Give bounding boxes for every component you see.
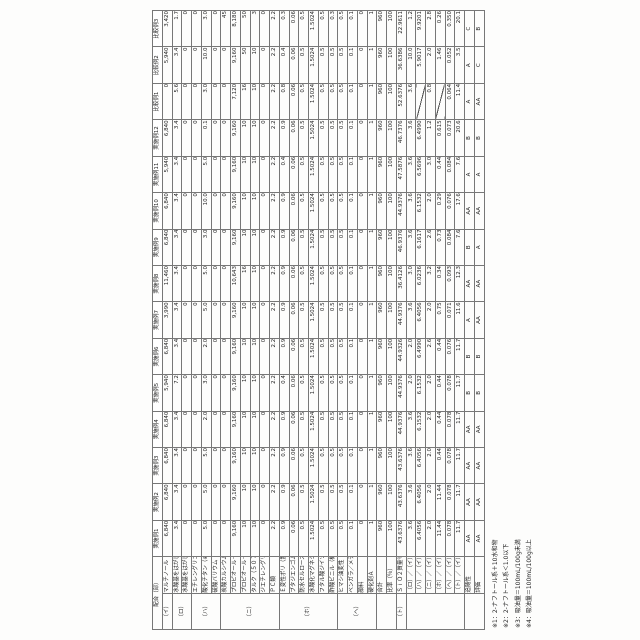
value-cell: 0.1 [201,120,211,156]
value-cell: 2.6 [426,229,436,265]
value-cell: 11.44 [435,520,445,556]
value-cell: 1.5024 [309,302,319,338]
value-cell: 0 [357,484,367,520]
value-cell: 0.73 [435,229,445,265]
value-cell: 6.4056 [416,302,426,338]
value-cell: 44.9376 [396,411,406,447]
table-body: （イ）マルチノール6,8406,8406,8406,8405,9406,8403… [162,11,484,630]
evaluation-cell: B [465,338,475,374]
value-cell: 10 [240,229,250,265]
value-cell: 0.5 [338,447,348,483]
evaluation-cell: AA [465,193,475,229]
table-row: 酢酸ビニル（機能性モノマー）系0.50.50.50.50.50.50.50.50… [328,11,338,630]
table-row: 硫酸バリウム（※4）000000000000000 [211,11,221,630]
value-cell: 0.5 [299,484,309,520]
value-cell: 10 [240,193,250,229]
row-label-cell: Ｅ変性ポリ（置換ナイロン）ゴム [279,557,289,593]
value-cell: 0.078 [445,375,455,411]
value-cell: 10.0 [201,193,211,229]
value-cell: 3.6 [406,83,416,119]
value-cell: 10 [240,156,250,192]
value-cell: 5.0 [201,156,211,192]
value-cell: 0.9 [279,265,289,301]
table-row: 防水セルロース0.50.50.50.50.50.50.50.50.50.50.5… [299,11,309,630]
value-cell: 12.3 [455,265,465,301]
value-cell: 2.2 [270,302,280,338]
value-cell: 43.6376 [396,520,406,556]
value-cell: 3.4 [172,302,182,338]
group-cell: （ニ） [221,593,280,629]
value-cell: 9,160 [231,520,241,556]
value-cell: 0 [221,338,231,374]
value-cell: 0.5 [299,11,309,48]
value-cell: 0.06 [289,265,299,301]
value-cell: 1.5024 [309,484,319,520]
value-cell: 9,160 [231,120,241,156]
value-cell: 10 [250,447,260,483]
value-cell: 2.0 [426,375,436,411]
value-cell: 0.1 [348,338,358,374]
table-row: ブタジエンゴム0.060.060.060.060.060.060.060.060… [289,11,299,630]
value-cell: 6.5696 [416,156,426,192]
value-cell: 0 [357,156,367,192]
table-header: 配合（部） 実施例1実施例2実施例3実施例4実施例5実施例6実施例7実施例8実施… [153,11,163,630]
value-cell: 0.5 [299,83,309,119]
table-row: （ホ）Ｅ変性ポリ（置換ナイロン）ゴム0.90.90.90.90.40.90.90… [279,11,289,630]
value-cell: 0.06 [289,302,299,338]
table-row: （ヘ）ヒマシ油変性（硬化ジエステル・テルペン系ゴム）0.50.50.50.50.… [338,11,348,630]
value-cell: 0.078 [445,411,455,447]
value-cell: 0.5 [328,156,338,192]
value-cell: 0 [357,338,367,374]
value-cell: 0 [192,338,202,374]
evaluation-cell: AA [474,265,484,301]
evaluation-cell: AA [474,484,484,520]
value-cell: 2.6 [426,338,436,374]
group-cell: （イ） [162,593,172,629]
value-cell: 3.4 [172,47,182,83]
value-cell: 3,990 [162,302,172,338]
value-cell: 0 [260,447,270,483]
row-label-cell: （ニ）／（イ） [426,557,436,593]
value-cell: 100 [387,411,397,447]
value-cell: 0.5 [318,83,328,119]
value-cell: 0 [211,411,221,447]
value-cell: 0.06 [289,229,299,265]
value-cell: 0.1 [348,411,358,447]
table-row: 追随性AAAAAAAABBAAABAAABAAC [465,11,475,630]
value-cell: 100 [387,156,397,192]
table-row: （イ）マルチノール6,8406,8406,8406,8405,9406,8403… [162,11,172,630]
value-cell: 0.44 [435,411,445,447]
row-label-cell: 評価 [474,557,484,593]
footnote-line: ※2：2-ナフトール系＜1.0以下 [501,10,513,628]
value-cell: 0.75 [435,302,445,338]
value-cell: 2.2 [270,83,280,119]
value-cell: 0.1 [348,156,358,192]
column-header: 実施例1 [153,520,163,556]
value-cell: 1 [367,265,377,301]
value-cell: 0.1 [348,11,358,48]
value-cell: 0 [357,120,367,156]
value-cell: 1.2 [426,120,436,156]
value-cell: 3.4 [172,411,182,447]
value-cell: 2.2 [270,11,280,48]
value-cell: 3.4 [172,520,182,556]
footnote-line: ※3：吸油量＝100mL/100g未満 [513,10,525,628]
value-cell: 2.2 [270,411,280,447]
value-cell: 10 [240,302,250,338]
value-cell: 0 [260,47,270,83]
value-cell: 0 [192,265,202,301]
row-label-cell: エチレングリコール [192,557,202,593]
value-cell: 0.5 [328,411,338,447]
value-cell: 0.4 [279,375,289,411]
value-cell: 0 [221,156,231,192]
value-cell: 1.46 [435,47,445,83]
evaluation-cell: AA [474,193,484,229]
value-cell: 0.9 [279,411,289,447]
value-cell: 2.0 [406,338,416,374]
value-cell: 0.5 [338,120,348,156]
value-cell: 960 [377,11,387,48]
value-cell: 0.44 [435,447,445,483]
value-cell: 0.5 [318,520,328,556]
evaluation-cell: A [465,83,475,119]
value-cell: 0 [211,520,221,556]
value-cell: 0 [182,302,192,338]
value-cell: 0.5 [338,484,348,520]
value-cell: 0.1 [348,302,358,338]
value-cell: 3.6 [406,229,416,265]
value-cell: 2.0 [201,338,211,374]
value-cell: 0.1 [348,229,358,265]
value-cell: 1 [367,411,377,447]
value-cell: 960 [377,338,387,374]
row-label-cell: （ホ）／（イ） [435,557,445,593]
value-cell: 0 [260,375,270,411]
value-cell: 11.7 [455,520,465,556]
value-cell: 3.0 [426,156,436,192]
group-cell [406,593,465,629]
value-cell: 0.9 [279,193,289,229]
value-cell: 2.0 [426,302,436,338]
row-label-cell: 炭酸カルシウム（うち－重質／軽質配合） [221,557,231,593]
value-cell: 16 [240,265,250,301]
value-cell: 9,160 [231,375,241,411]
value-cell: 0.5 [318,265,328,301]
value-cell: 8,180 [231,11,241,48]
value-cell: 0 [260,411,270,447]
value-cell: 0 [192,229,202,265]
value-cell: 0.084 [445,156,455,192]
value-cell: 0 [260,520,270,556]
table-row: プロピオール－Ｂ（５４５）101010101010101610101010165… [240,11,250,630]
column-header: 実施例10 [153,193,163,229]
value-cell: 0.9 [279,120,289,156]
value-cell: 0.06 [289,520,299,556]
value-cell: 100 [387,229,397,265]
value-cell: 0.9 [279,447,289,483]
value-cell: 10 [240,375,250,411]
value-cell: 960 [377,120,387,156]
value-cell: 2.2 [270,193,280,229]
value-cell: 0 [221,120,231,156]
value-cell: 6.4056 [416,484,426,520]
value-cell: 960 [377,375,387,411]
evaluation-cell: AA [474,447,484,483]
value-cell: 5.6 [172,83,182,119]
value-cell: 0 [357,193,367,229]
value-cell: 3.4 [172,447,182,483]
value-cell: 0.5 [338,47,348,83]
value-cell: 2.0 [426,193,436,229]
value-cell: 2.2 [270,229,280,265]
value-cell: 0 [221,193,231,229]
value-cell: 0 [182,120,192,156]
value-cell: 0.1 [348,520,358,556]
value-cell: 960 [377,193,387,229]
value-cell: 44.9376 [396,193,406,229]
value-cell: 960 [377,83,387,119]
value-cell: 960 [377,520,387,556]
value-cell: 0.34 [435,265,445,301]
value-cell: 3.6 [406,302,416,338]
value-cell: 0.5 [318,338,328,374]
value-cell: 0 [192,447,202,483]
table-row: （ヘ）／（イ）0.0780.0780.0780.0780.0780.0760.0… [445,11,455,630]
value-cell: 0.5 [299,193,309,229]
value-cell: 960 [377,484,387,520]
value-cell: 6.1617 [416,229,426,265]
value-cell: 6,840 [162,411,172,447]
value-cell: 0 [192,47,202,83]
value-cell: 0 [211,338,221,374]
value-cell: 100 [387,265,397,301]
value-cell: 0.1 [348,193,358,229]
value-cell: 0 [192,411,202,447]
row-label-cell: 硫酸バリウム（※4） [211,557,221,593]
value-cell: 0.29 [435,193,445,229]
value-cell: 9,160 [231,484,241,520]
value-cell: 0 [221,520,231,556]
value-cell: 0.5 [318,447,328,483]
group-cell [377,593,397,629]
value-cell: 0 [357,520,367,556]
table-row: 水酸基をはがしたもの（Ｑ－３７タノール）（※2）000000000000000 [182,11,192,630]
table-row: 評価AAAAAAAABBAAAAAAAABAACB [474,11,484,630]
value-cell: 0 [221,302,231,338]
value-cell: 6.1532 [416,375,426,411]
value-cell: 6.4990 [416,338,426,374]
value-cell: 1.5024 [309,47,319,83]
value-cell: 1.5024 [309,229,319,265]
value-cell: 0 [211,265,221,301]
value-cell: 0 [221,265,231,301]
value-cell: 100 [387,447,397,483]
value-cell: 0.1 [348,120,358,156]
value-cell: 5.0 [201,265,211,301]
value-cell: 50 [240,11,250,48]
value-cell: 2.2 [270,156,280,192]
value-cell: 3,420 [162,11,172,48]
value-cell: 0.5 [318,11,328,48]
value-cell: 6.1532 [416,411,426,447]
value-cell: 0 [211,375,221,411]
column-header: 実施例8 [153,265,163,301]
value-cell: 0 [221,375,231,411]
row-label-cell: （ト）／（イ） [455,557,465,593]
value-cell: 100 [387,11,397,48]
value-cell: 1.5024 [309,447,319,483]
value-cell: 5.9017 [416,47,426,83]
value-cell: 0 [357,83,367,119]
evaluation-cell: A [474,156,484,192]
value-cell: 52.6376 [396,83,406,119]
value-cell: 1 [367,193,377,229]
value-cell: 3.5 [455,47,465,83]
value-cell: 3.4 [172,229,182,265]
column-header: 実施例4 [153,411,163,447]
value-cell: 0.5 [328,447,338,483]
value-cell: 6,840 [162,338,172,374]
value-cell: 0.5 [299,265,309,301]
evaluation-cell: AA [474,411,484,447]
value-cell: 100 [387,338,397,374]
value-cell: 1.5024 [309,520,319,556]
table-row: 硬化剤Ａ111111111111111 [367,11,377,630]
value-cell: 10 [250,193,260,229]
value-cell: 0.5 [328,83,338,119]
value-cell: 0 [221,229,231,265]
value-cell: 0 [211,302,221,338]
value-cell: 0 [182,47,192,83]
group-cell: （ハ） [192,593,221,629]
value-cell: 1.7 [172,11,182,48]
evaluation-cell: A [474,229,484,265]
value-cell: 0 [260,193,270,229]
value-cell: 2.2 [270,375,280,411]
value-cell: 2.2 [270,120,280,156]
value-cell: 0.5 [299,411,309,447]
value-cell: 0 [182,484,192,520]
value-cell: 50 [240,47,250,83]
value-cell: 3.6 [406,447,416,483]
value-cell: 0.5 [328,265,338,301]
value-cell: 0.5 [338,11,348,48]
value-cell: 0.3 [279,11,289,48]
value-cell: 0.06 [289,375,299,411]
value-cell: 22.9611 [396,11,406,48]
value-cell: 45 [221,11,231,48]
value-cell: 0.9 [279,484,289,520]
value-cell: 5.0 [201,447,211,483]
value-cell: 0 [182,338,192,374]
value-cell: 0 [260,11,270,48]
value-cell: 0.076 [445,193,455,229]
row-label-cell: プロピオール－Ｂ（５４５） [240,557,250,593]
value-cell: 0.5 [338,338,348,374]
value-cell: 0.06 [289,338,299,374]
rotated-table-block: 配合（部） 実施例1実施例2実施例3実施例4実施例5実施例6実施例7実施例8実施… [152,10,512,630]
value-cell: 11.7 [455,411,465,447]
table-row: ＰＣ類2.22.22.22.22.22.22.22.22.22.22.22.22… [270,11,280,630]
evaluation-cell: AA [474,83,484,119]
value-cell: 11.7 [455,338,465,374]
value-cell: 0.44 [435,375,445,411]
value-cell: 44.9326 [396,338,406,374]
column-header: 実施例6 [153,338,163,374]
value-cell: 0.5 [338,229,348,265]
table-row: （ニ）／（イ）2.02.02.02.02.02.62.03.22.62.03.0… [426,11,436,630]
value-cell: 1 [367,338,377,374]
evaluation-cell: B [465,120,475,156]
value-cell: 0 [260,83,270,119]
value-cell: 2.0 [201,411,211,447]
value-cell: 0.076 [445,338,455,374]
value-cell: 10 [240,520,250,556]
value-cell: 0 [221,411,231,447]
value-cell: 0.5 [338,193,348,229]
column-header: 実施例9 [153,229,163,265]
row-label-cell: 酸化チタン（※3） [201,557,211,593]
value-cell: 0.06 [289,11,299,48]
value-cell: 1 [367,375,377,411]
value-cell: 0 [182,229,192,265]
column-header: 実施例2 [153,484,163,520]
value-cell: 6.0236 [416,265,426,301]
value-cell: 3.4 [172,338,182,374]
value-cell: 6,840 [162,229,172,265]
value-cell: 11.7 [455,447,465,483]
value-cell: 0 [211,156,221,192]
value-cell: 0.5 [318,375,328,411]
value-cell: 3.6 [406,156,416,192]
row-label-cell: （ヘ）／（イ） [445,557,455,593]
evaluation-cell: AA [465,447,475,483]
value-cell: 960 [377,265,387,301]
value-cell: 9,160 [231,411,241,447]
value-cell: 0 [192,484,202,520]
value-cell: 1.2 [406,11,416,48]
value-cell: 0.615 [435,120,445,156]
value-cell: 11,460 [162,265,172,301]
value-cell: 0.5 [299,520,309,556]
value-cell: 44.9376 [396,302,406,338]
table-row: （ニ）炭酸カルシウム（うち－重質／軽質配合）0000000000000045 [221,11,231,630]
value-cell: 100 [387,520,397,556]
evaluation-cell: AA [465,484,475,520]
value-cell: 3.0 [406,265,416,301]
value-cell: 2.8 [426,11,436,48]
value-cell: 960 [377,229,387,265]
table-row: （ト）ＳｉＯ２質量％43.637643.637643.637644.937644… [396,11,406,630]
value-cell: 0 [211,484,221,520]
value-cell: 0 [182,411,192,447]
value-cell: 100 [387,302,397,338]
value-cell: 0 [182,83,192,119]
evaluation-cell: AA [465,265,475,301]
table-row: 顔料000000000000000 [357,11,367,630]
group-cell [465,593,485,629]
value-cell: 0 [211,83,221,119]
row-label-cell: ヒマシ油変性（硬化ジエステル・テルペン系ゴム） [338,557,348,593]
group-cell: （ホ） [279,593,338,629]
column-header: 実施例11 [153,156,163,192]
value-cell: 9,160 [231,47,241,83]
value-cell: 0 [221,484,231,520]
value-cell: 1.5024 [309,375,319,411]
